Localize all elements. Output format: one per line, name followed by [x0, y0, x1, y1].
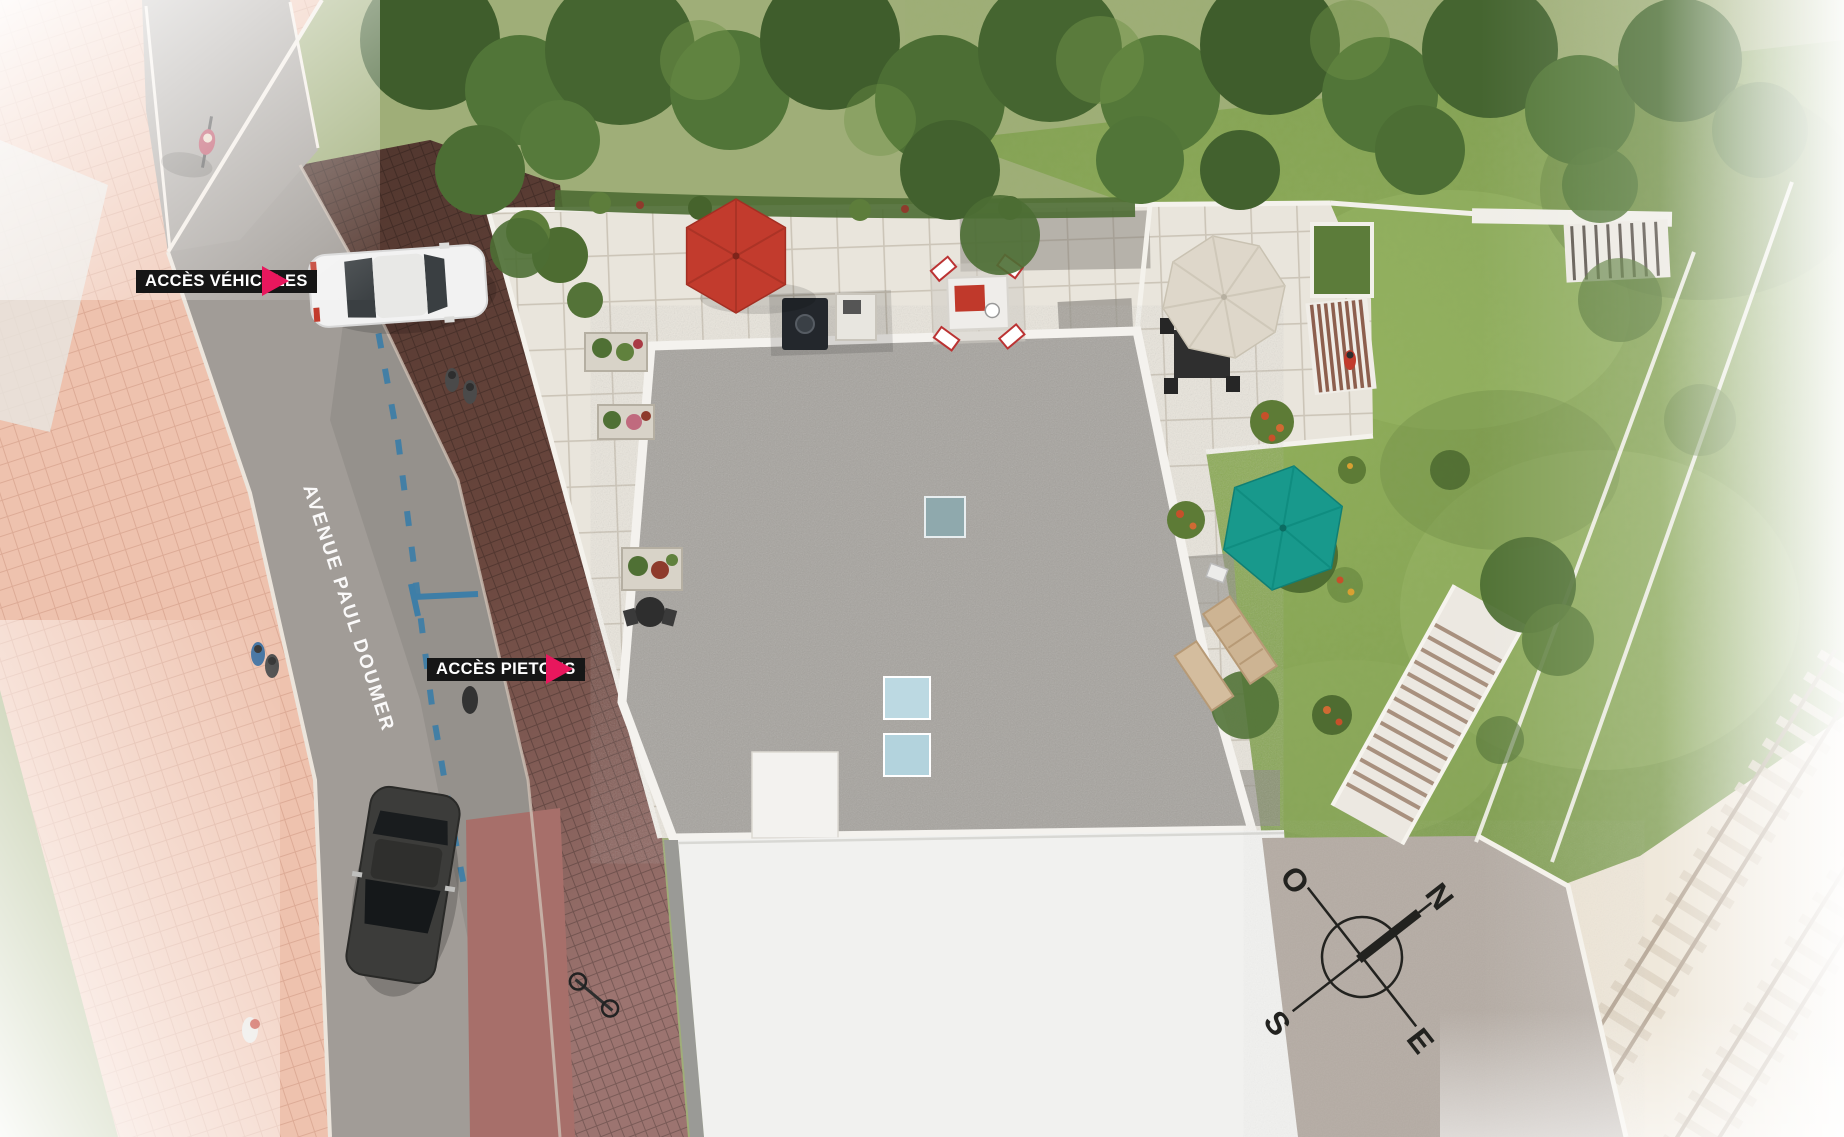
pergola [1305, 297, 1376, 395]
site-plan-rendering: AVENUE PAUL DOUMER [0, 0, 1844, 1137]
hedge-planter [1312, 224, 1372, 296]
site-plan: AVENUE PAUL DOUMER [0, 0, 1844, 1137]
pedestrian-access-arrow-icon [546, 654, 573, 684]
roof-skylight [925, 497, 965, 537]
red-paved-strip [466, 808, 575, 1137]
roof-skylight [884, 734, 930, 776]
vehicle-access-arrow-icon [262, 266, 289, 296]
roof-skylight [884, 677, 930, 719]
white-building-roof [664, 830, 1302, 1137]
roof-access-box [752, 752, 838, 838]
vehicle-access-label: ACCÈS VÉHICULES [136, 270, 317, 293]
